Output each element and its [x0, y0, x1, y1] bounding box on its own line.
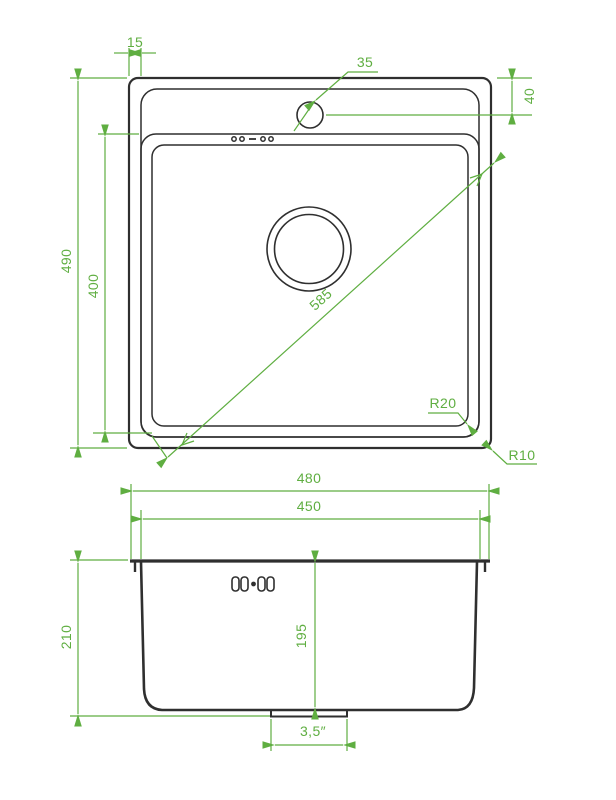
- drain-inner-circle: [275, 215, 344, 284]
- width-dimensions: 480 450: [131, 470, 489, 559]
- dim-label-faucet-offset: 40: [521, 88, 537, 104]
- dim-label-drain-diameter: 3,5″: [300, 723, 326, 739]
- dim-label-overall-depth: 210: [58, 625, 74, 650]
- dim-label-faucet-hole: 35: [357, 54, 373, 70]
- bowl-section-outline: [141, 562, 477, 710]
- dim-bowl-height: 400: [85, 134, 152, 433]
- top-view: 15 490 400 35 40: [58, 34, 537, 464]
- dim-label-overall-width: 480: [297, 470, 322, 486]
- bowl-inner-edge: [152, 145, 468, 426]
- drain-stub: [271, 711, 347, 717]
- dim-drain-diameter: 3,5″: [271, 719, 347, 751]
- dim-overall-width: 480: [131, 470, 489, 559]
- dim-bowl-diagonal: 585: [152, 163, 494, 458]
- overflow-holes-side: [232, 577, 274, 591]
- faucet-hole: [297, 102, 323, 128]
- dim-label-outer-corner-radius: R10: [509, 447, 536, 463]
- bowl-outer-edge: [141, 134, 479, 437]
- dim-label-overall-height: 490: [58, 249, 74, 274]
- sink-rim-inner-edge: [141, 89, 479, 437]
- dim-bowl-corner-radius: R20: [428, 395, 467, 424]
- dim-faucet-offset: 40: [326, 78, 537, 115]
- dim-faucet-hole: 35: [294, 54, 378, 131]
- dim-label-bowl-corner-radius: R20: [430, 395, 457, 411]
- dim-label-bowl-height: 400: [85, 274, 101, 299]
- dim-label-rim-width: 15: [127, 34, 143, 50]
- dim-label-bowl-depth: 195: [293, 624, 309, 649]
- dim-bowl-depth: 195: [293, 563, 315, 707]
- technical-drawing: 15 490 400 35 40: [0, 0, 616, 800]
- sink-drawing-svg: 15 490 400 35 40: [0, 0, 616, 800]
- dim-rim-width: 15: [114, 34, 156, 76]
- dim-label-bowl-width: 450: [297, 498, 322, 514]
- dim-bowl-width: 450: [141, 498, 480, 559]
- side-view: 210 195 3,5″: [58, 560, 490, 751]
- dim-label-bowl-diagonal: 585: [306, 285, 335, 313]
- overflow-holes-top: [232, 137, 273, 141]
- dim-outer-corner-radius: R10: [493, 447, 537, 464]
- drain-outer-circle: [267, 207, 351, 291]
